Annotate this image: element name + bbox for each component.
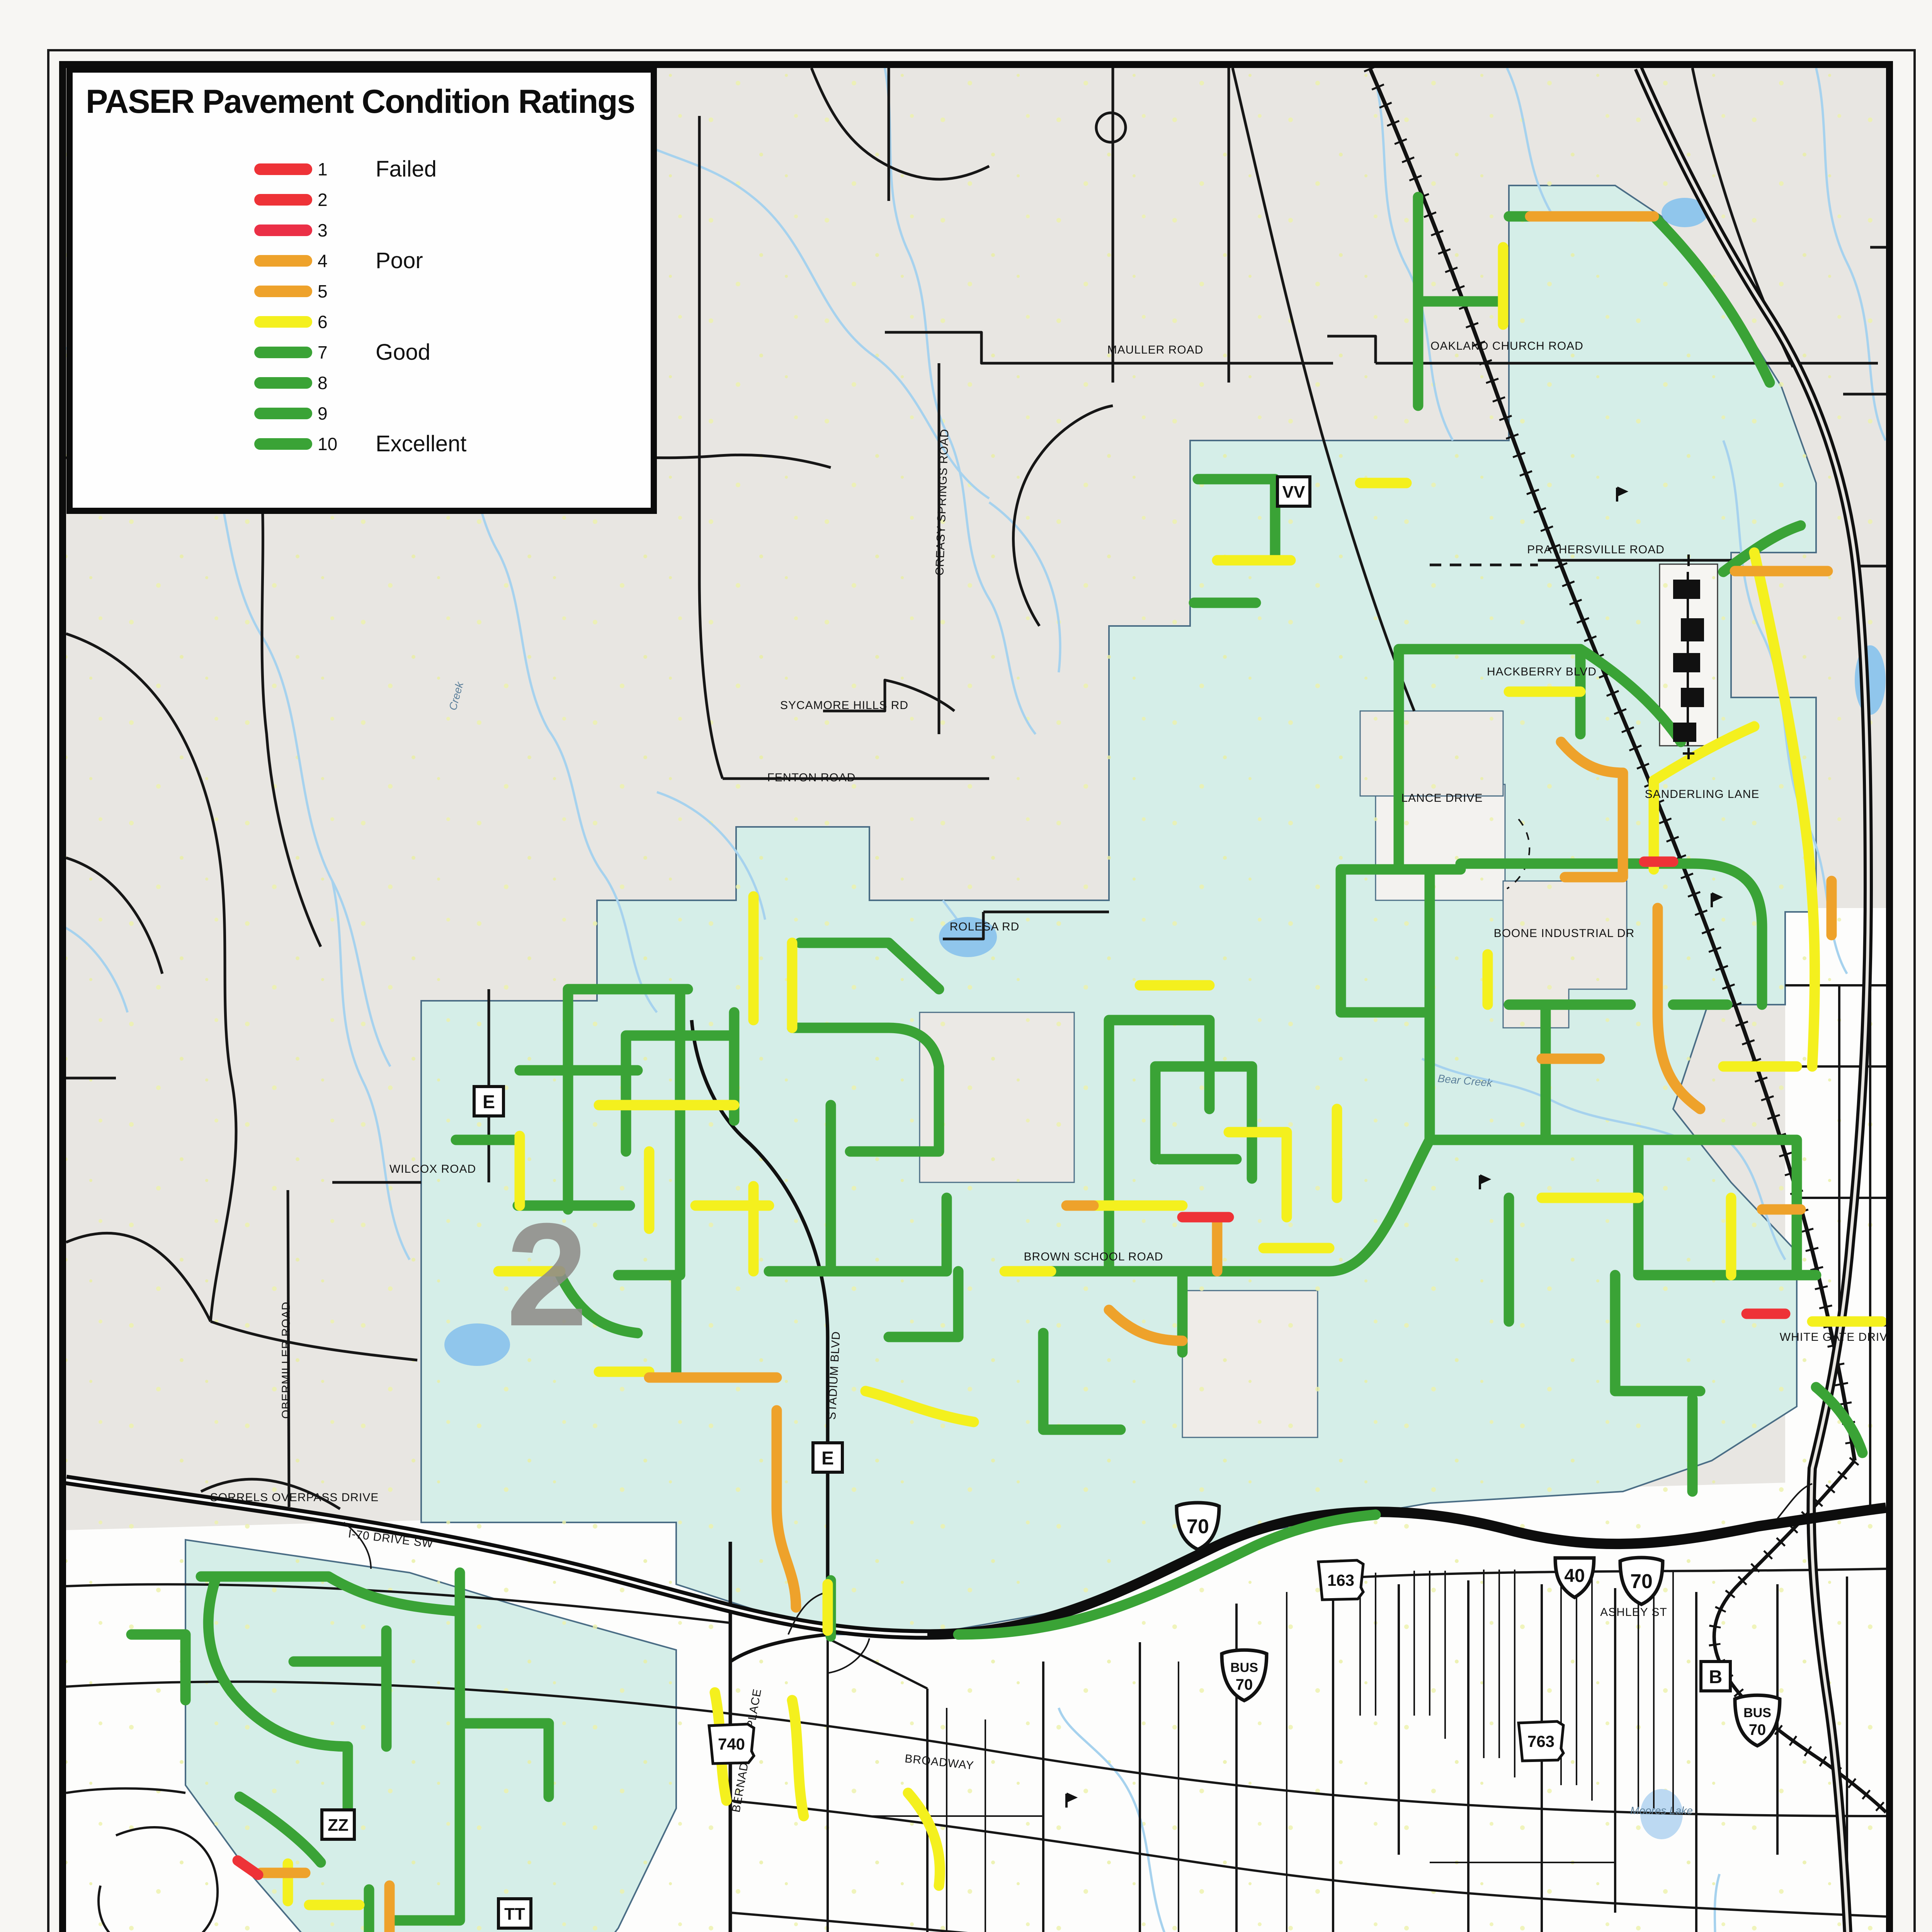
paser-rating-row: 10Excellent — [73, 429, 651, 459]
rating-category: Good — [376, 339, 430, 365]
street-label: OBERMILLER ROAD — [280, 1301, 293, 1418]
street-label: LANCE DRIVE — [1401, 792, 1483, 804]
paser-rating-row: 3 — [73, 215, 651, 245]
water-label: Moores Lake — [1630, 1804, 1693, 1816]
svg-text:ZZ: ZZ — [328, 1816, 349, 1835]
street-label: BOONE INDUSTRIAL DR — [1494, 927, 1635, 940]
street-label: WHITE GATE DRIVE — [1780, 1331, 1896, 1344]
street-label: WILCOX ROAD — [389, 1163, 476, 1175]
paser-rating-row: 1Failed — [73, 154, 651, 184]
state-route-shield: 763 — [1519, 1721, 1563, 1761]
rating-value: 5 — [318, 281, 352, 302]
paser-legend-title: PASER Pavement Condition Ratings — [73, 73, 651, 121]
letter-route-shield: E — [813, 1443, 842, 1472]
letter-route-shield: B — [1701, 1662, 1730, 1691]
rating-swatch-10 — [254, 438, 312, 450]
svg-text:763: 763 — [1527, 1732, 1554, 1750]
svg-text:E: E — [483, 1092, 495, 1112]
paser-rating-row: 9 — [73, 398, 651, 429]
rating-value: 6 — [318, 311, 352, 332]
paser-rating-row: 4Poor — [73, 245, 651, 276]
rating-swatch-1 — [254, 163, 312, 175]
svg-text:70: 70 — [1749, 1721, 1766, 1738]
svg-text:E: E — [821, 1448, 834, 1469]
rating-swatch-5 — [254, 286, 312, 297]
letter-route-shield: ZZ — [322, 1810, 354, 1839]
paser-rating-row: 2 — [73, 184, 651, 215]
svg-text:40: 40 — [1564, 1566, 1585, 1586]
street-label: ROLESA RD — [950, 920, 1020, 933]
street-label: MAULLER ROAD — [1107, 344, 1204, 356]
svg-text:70: 70 — [1236, 1676, 1253, 1693]
street-label: PRATHERSVILLE ROAD — [1527, 543, 1665, 556]
svg-text:TT: TT — [504, 1905, 525, 1923]
rating-value: 9 — [318, 403, 352, 424]
rating-value: 10 — [318, 434, 352, 454]
rating-value: 2 — [318, 189, 352, 210]
rating-category: Excellent — [376, 431, 466, 457]
rating-swatch-3 — [254, 224, 312, 236]
svg-text:B: B — [1709, 1667, 1723, 1687]
state-route-shield: 740 — [709, 1724, 754, 1764]
rating-swatch-4 — [254, 255, 312, 267]
svg-text:740: 740 — [718, 1735, 745, 1753]
letter-route-shield: TT — [498, 1899, 531, 1928]
rating-value: 4 — [318, 250, 352, 271]
letter-route-shield: E — [474, 1087, 503, 1116]
paser-rating-row: 6 — [73, 306, 651, 337]
street-label: SANDERLING LANE — [1645, 788, 1760, 801]
rating-category: Poor — [376, 248, 423, 274]
rating-swatch-8 — [254, 377, 312, 389]
street-label: BROWN SCHOOL ROAD — [1024, 1250, 1163, 1263]
map-page: .rd{stroke:#161616;stroke-width:7;fill:n… — [0, 0, 1932, 1932]
letter-route-shield: VV — [1277, 477, 1310, 506]
state-route-shield: 163 — [1318, 1560, 1363, 1600]
street-label: SYCAMORE HILLS RD — [780, 699, 908, 712]
svg-text:70: 70 — [1630, 1570, 1653, 1593]
rating-swatch-9 — [254, 408, 312, 419]
paser-rating-row: 7Good — [73, 337, 651, 367]
svg-text:VV: VV — [1282, 483, 1305, 502]
street-label: OAKLAND CHURCH ROAD — [1430, 340, 1583, 352]
rating-value: 3 — [318, 220, 352, 241]
rating-swatch-2 — [254, 194, 312, 206]
ward-number-label: 2 — [506, 1192, 588, 1357]
paser-rating-row: 8 — [73, 367, 651, 398]
rating-value: 8 — [318, 372, 352, 393]
svg-text:BUS: BUS — [1743, 1706, 1771, 1720]
rating-category: Failed — [376, 156, 437, 182]
street-label: HACKBERRY BLVD — [1487, 665, 1597, 678]
paser-rating-rows: 1Failed 2 3 4Poor 5 6 7Good 8 9 10Excell… — [73, 154, 651, 459]
street-label: SORRELS OVERPASS DRIVE — [210, 1491, 379, 1504]
rating-value: 7 — [318, 342, 352, 363]
rating-swatch-6 — [254, 316, 312, 328]
svg-text:70: 70 — [1187, 1515, 1209, 1538]
paser-rating-row: 5 — [73, 276, 651, 306]
rating-value: 1 — [318, 159, 352, 180]
street-label: FENTON ROAD — [767, 771, 856, 784]
paser-legend-panel: PASER Pavement Condition Ratings 1Failed… — [66, 66, 657, 514]
rating-swatch-7 — [254, 347, 312, 358]
street-label: ASHLEY ST — [1600, 1606, 1667, 1619]
svg-text:BUS: BUS — [1230, 1660, 1258, 1675]
svg-text:163: 163 — [1327, 1571, 1354, 1589]
